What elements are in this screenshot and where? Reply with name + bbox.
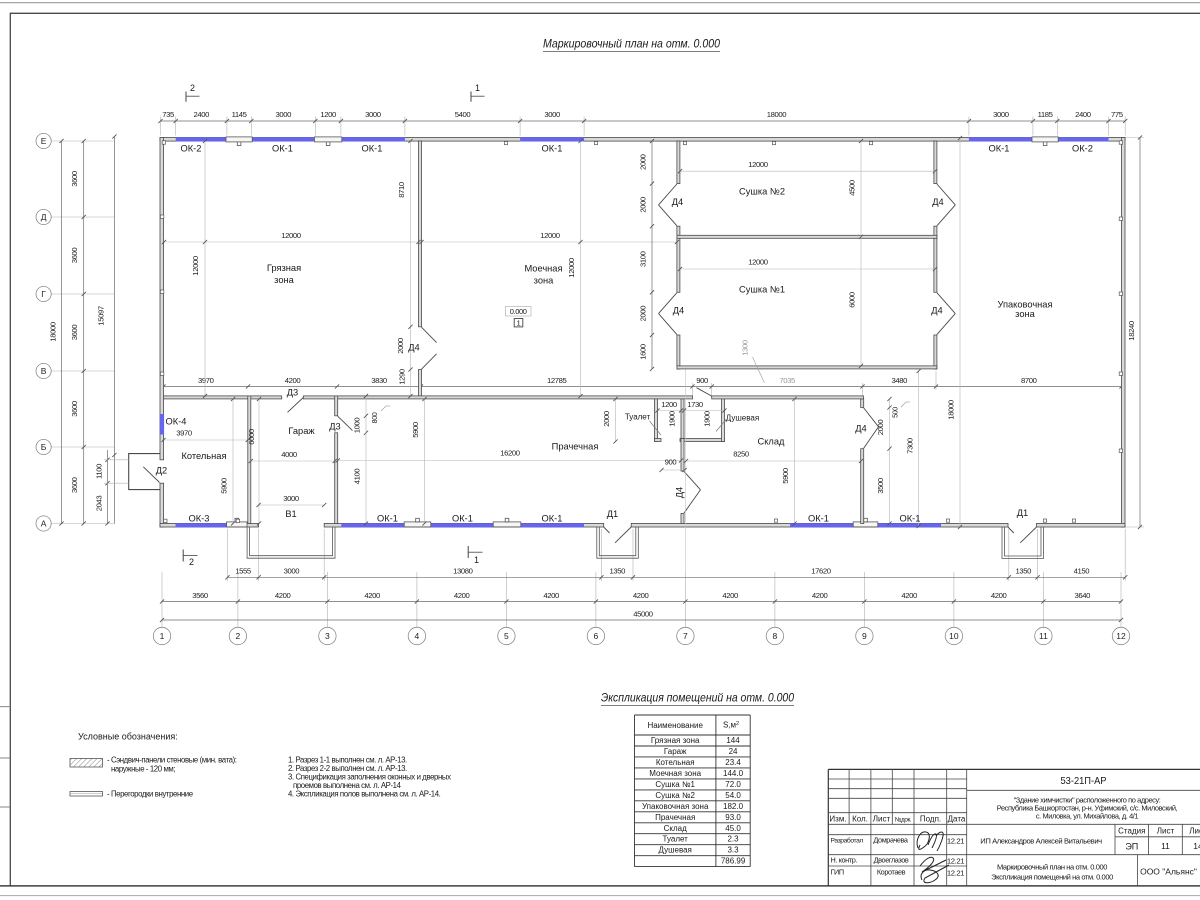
svg-text:5400: 5400 — [455, 110, 471, 119]
svg-text:18000: 18000 — [49, 322, 58, 342]
svg-text:Грязная зона: Грязная зона — [651, 736, 700, 745]
svg-text:4: 4 — [415, 631, 420, 641]
svg-text:2: 2 — [190, 83, 195, 93]
svg-text:Сушка №2: Сушка №2 — [739, 186, 785, 196]
svg-text:53-21П-АР: 53-21П-АР — [1061, 776, 1107, 787]
svg-text:ОК-2: ОК-2 — [1072, 144, 1093, 154]
svg-text:3600: 3600 — [70, 477, 79, 493]
svg-text:Д4: Д4 — [675, 487, 685, 498]
svg-text:ЭП: ЭП — [1125, 842, 1138, 852]
svg-text:Кол.: Кол. — [852, 815, 868, 824]
svg-text:3600: 3600 — [70, 325, 79, 341]
svg-text:Туалет: Туалет — [663, 835, 689, 844]
svg-text:12000: 12000 — [567, 258, 576, 278]
svg-text:1145: 1145 — [232, 110, 247, 119]
svg-text:4100: 4100 — [353, 469, 362, 485]
svg-text:ГИП: ГИП — [831, 868, 844, 877]
svg-text:23.4: 23.4 — [725, 758, 741, 767]
svg-text:3: 3 — [325, 631, 330, 641]
svg-text:12000: 12000 — [748, 258, 768, 267]
svg-text:2400: 2400 — [1075, 110, 1091, 119]
svg-text:Сушка №1: Сушка №1 — [655, 780, 695, 789]
svg-text:Д4: Д4 — [673, 306, 684, 316]
svg-text:12.21: 12.21 — [947, 857, 964, 866]
svg-text:Моечная: Моечная — [524, 263, 562, 273]
svg-text:1100: 1100 — [95, 464, 104, 479]
svg-text:Котельная: Котельная — [656, 758, 695, 767]
svg-text:1185: 1185 — [1038, 110, 1053, 119]
svg-text:ОК-1: ОК-1 — [542, 514, 563, 524]
svg-text:Д2: Д2 — [156, 466, 167, 476]
svg-text:45.0: 45.0 — [725, 824, 741, 833]
svg-text:735: 735 — [162, 110, 174, 119]
svg-text:800: 800 — [370, 412, 379, 423]
svg-text:Б: Б — [41, 442, 47, 452]
svg-text:3600: 3600 — [70, 171, 79, 187]
svg-text:2000: 2000 — [639, 197, 648, 213]
svg-text:6: 6 — [594, 631, 599, 641]
svg-text:72.0: 72.0 — [725, 780, 741, 789]
svg-text:Наименование: Наименование — [647, 721, 703, 730]
svg-text:12.21: 12.21 — [947, 837, 964, 846]
svg-text:Лист: Лист — [1157, 827, 1175, 836]
svg-text:8710: 8710 — [397, 182, 406, 198]
svg-text:Д1: Д1 — [1017, 508, 1028, 518]
svg-text:2: 2 — [189, 557, 194, 567]
svg-text:с. Миловка, ул. Михайлова, д.: с. Миловка, ул. Михайлова, д. 4/1 — [1036, 812, 1139, 821]
svg-text:3100: 3100 — [639, 251, 648, 267]
svg-text:786.99: 786.99 — [721, 857, 746, 866]
svg-text:3600: 3600 — [70, 248, 79, 264]
svg-text:3970: 3970 — [198, 376, 214, 385]
svg-text:ОК-2: ОК-2 — [181, 144, 202, 154]
svg-text:12000: 12000 — [748, 160, 768, 169]
svg-text:Экспликация помещений на отм.: Экспликация помещений на отм. 0.000 — [601, 691, 794, 705]
svg-text:17620: 17620 — [811, 567, 831, 576]
svg-text:11: 11 — [1161, 841, 1170, 851]
svg-text:Туалет: Туалет — [625, 413, 651, 422]
svg-text:54.0: 54.0 — [725, 791, 741, 800]
svg-text:Н. контр.: Н. контр. — [831, 856, 858, 865]
svg-text:Гараж: Гараж — [288, 426, 315, 436]
svg-text:ОК-1: ОК-1 — [989, 144, 1010, 154]
svg-text:3830: 3830 — [371, 376, 387, 385]
svg-text:3560: 3560 — [192, 591, 208, 600]
svg-text:Д4: Д4 — [931, 306, 942, 316]
svg-text:Стадия: Стадия — [1118, 827, 1145, 836]
svg-text:93.0: 93.0 — [725, 813, 741, 822]
svg-text:4200: 4200 — [901, 591, 917, 600]
svg-text:4150: 4150 — [1074, 567, 1090, 576]
svg-text:1290: 1290 — [398, 369, 407, 385]
svg-text:16200: 16200 — [500, 448, 520, 457]
svg-text:1350: 1350 — [609, 567, 625, 576]
svg-text:8: 8 — [773, 631, 778, 641]
svg-text:18000: 18000 — [947, 400, 956, 420]
svg-text:12000: 12000 — [191, 256, 200, 276]
svg-text:8700: 8700 — [1021, 376, 1037, 385]
svg-text:1900: 1900 — [703, 411, 712, 427]
svg-text:Лист: Лист — [873, 815, 891, 824]
svg-text:Маркировочный план на отм. 0.0: Маркировочный план на отм. 0.000 — [543, 37, 720, 51]
svg-text:ОК-1: ОК-1 — [377, 514, 398, 524]
svg-text:Дата: Дата — [948, 815, 966, 824]
svg-text:зона: зона — [1015, 309, 1035, 319]
svg-text:- Перегородки внутренние: - Перегородки внутренние — [107, 790, 193, 799]
svg-text:3640: 3640 — [1074, 591, 1090, 600]
svg-text:3000: 3000 — [365, 110, 381, 119]
svg-text:5: 5 — [504, 631, 509, 641]
svg-text:1300: 1300 — [741, 340, 750, 356]
svg-text:7: 7 — [683, 631, 688, 641]
svg-text:- Сэндвич-панели стеновые (мин: - Сэндвич-панели стеновые (мин. вата): — [107, 756, 237, 765]
svg-text:Д4: Д4 — [932, 197, 943, 207]
svg-text:13080: 13080 — [453, 567, 473, 576]
svg-text:144.0: 144.0 — [723, 769, 744, 778]
svg-text:3600: 3600 — [70, 401, 79, 417]
svg-text:1: 1 — [160, 631, 165, 641]
svg-text:Котельная: Котельная — [181, 451, 226, 461]
svg-text:Е: Е — [41, 136, 47, 146]
svg-text:4200: 4200 — [812, 591, 828, 600]
svg-text:144: 144 — [726, 736, 740, 745]
svg-text:5900: 5900 — [411, 422, 420, 438]
svg-text:2043: 2043 — [95, 496, 104, 512]
svg-text:Д: Д — [41, 212, 47, 222]
svg-text:0.000: 0.000 — [510, 307, 527, 316]
svg-text:182.0: 182.0 — [723, 802, 744, 811]
svg-text:7035: 7035 — [779, 376, 795, 385]
svg-text:ОК-4: ОК-4 — [166, 417, 187, 427]
svg-text:Упаковочная зона: Упаковочная зона — [642, 802, 709, 811]
svg-text:ИП Александров Алексей Виталье: ИП Александров Алексей Витальевич — [980, 837, 1102, 846]
svg-text:2000: 2000 — [639, 154, 648, 170]
svg-text:Душевая: Душевая — [726, 414, 759, 423]
svg-text:4200: 4200 — [722, 591, 738, 600]
svg-text:№док.: №док. — [895, 817, 912, 824]
svg-text:Экспликация помещений на отм.: Экспликация помещений на отм. 0.000 — [991, 873, 1113, 882]
svg-text:12000: 12000 — [540, 231, 560, 240]
svg-text:Д3: Д3 — [287, 388, 298, 398]
svg-text:Сушка №2: Сушка №2 — [655, 791, 695, 800]
svg-text:3000: 3000 — [993, 110, 1009, 119]
svg-text:1: 1 — [474, 555, 479, 565]
svg-text:Прачечная: Прачечная — [655, 813, 695, 822]
svg-text:10: 10 — [949, 631, 959, 641]
svg-text:2000: 2000 — [602, 411, 611, 427]
svg-text:Склад: Склад — [758, 437, 785, 447]
svg-text:Разработал: Разработал — [831, 837, 864, 845]
svg-text:4500: 4500 — [848, 180, 857, 196]
svg-text:15097: 15097 — [97, 306, 106, 326]
svg-text:2000: 2000 — [876, 420, 885, 436]
svg-text:4000: 4000 — [281, 450, 297, 459]
svg-text:Душевая: Душевая — [658, 846, 691, 855]
svg-text:1555: 1555 — [235, 567, 251, 576]
svg-text:Грязная: Грязная — [267, 263, 301, 273]
svg-text:900: 900 — [696, 376, 708, 385]
svg-text:4200: 4200 — [633, 591, 649, 600]
svg-text:5900: 5900 — [781, 468, 790, 484]
svg-text:ОК-1: ОК-1 — [272, 144, 293, 154]
svg-text:Коротаев: Коротаев — [877, 868, 906, 877]
svg-text:2000: 2000 — [639, 306, 648, 322]
svg-text:ОК-1: ОК-1 — [808, 514, 829, 524]
svg-text:1: 1 — [517, 318, 521, 327]
svg-text:Условные обозначения:: Условные обозначения: — [78, 732, 178, 742]
svg-text:зона: зона — [534, 275, 554, 285]
svg-text:Упаковочная: Упаковочная — [997, 300, 1052, 310]
svg-text:3000: 3000 — [283, 494, 299, 503]
svg-text:Изм.: Изм. — [829, 815, 846, 824]
svg-text:Моечная зона: Моечная зона — [649, 769, 701, 778]
svg-text:45000: 45000 — [633, 610, 653, 619]
svg-text:Двоеглазов: Двоеглазов — [874, 856, 909, 865]
svg-text:зона: зона — [274, 275, 294, 285]
svg-text:Подп.: Подп. — [920, 815, 941, 824]
svg-text:11: 11 — [1039, 631, 1048, 641]
svg-text:Сушка №1: Сушка №1 — [739, 284, 785, 294]
svg-text:Прачечная: Прачечная — [552, 442, 599, 452]
svg-text:3000: 3000 — [544, 110, 560, 119]
svg-text:Д4: Д4 — [672, 197, 683, 207]
svg-text:7300: 7300 — [905, 438, 914, 454]
svg-text:наружные - 120 мм;: наружные - 120 мм; — [111, 765, 175, 774]
svg-text:1730: 1730 — [687, 400, 703, 409]
svg-text:3970: 3970 — [176, 428, 192, 437]
svg-text:1600: 1600 — [639, 344, 648, 360]
svg-text:5900: 5900 — [220, 478, 229, 494]
svg-text:Гараж: Гараж — [664, 747, 687, 756]
svg-text:Склад: Склад — [664, 824, 687, 833]
svg-text:4200: 4200 — [543, 591, 559, 600]
svg-text:А: А — [41, 519, 47, 529]
svg-text:4200: 4200 — [285, 376, 301, 385]
svg-text:ООО "Альянс": ООО "Альянс" — [1140, 867, 1197, 877]
svg-text:ОК-1: ОК-1 — [452, 514, 473, 524]
svg-text:3480: 3480 — [891, 376, 907, 385]
svg-text:6000: 6000 — [247, 429, 256, 445]
svg-text:900: 900 — [665, 458, 677, 467]
svg-text:4200: 4200 — [275, 591, 291, 600]
svg-text:24: 24 — [729, 747, 738, 756]
svg-text:Д4: Д4 — [408, 343, 419, 353]
svg-text:В1: В1 — [285, 509, 296, 519]
svg-text:1350: 1350 — [1015, 567, 1031, 576]
svg-text:3.3: 3.3 — [727, 846, 739, 855]
svg-text:Домрачева: Домрачева — [873, 836, 909, 845]
svg-text:ОК-1: ОК-1 — [900, 514, 921, 524]
svg-text:Маркировочный план на отм. 0.0: Маркировочный план на отм. 0.000 — [997, 863, 1107, 872]
svg-text:9: 9 — [862, 631, 867, 641]
svg-text:1000: 1000 — [353, 418, 362, 434]
svg-text:8250: 8250 — [733, 450, 749, 459]
svg-text:2.3: 2.3 — [727, 835, 739, 844]
svg-text:Лист: Лист — [1189, 827, 1200, 836]
svg-text:1900: 1900 — [668, 411, 677, 427]
svg-text:1200: 1200 — [661, 400, 677, 409]
svg-text:ОК-1: ОК-1 — [362, 144, 383, 154]
svg-text:775: 775 — [1111, 110, 1123, 119]
svg-text:12785: 12785 — [547, 376, 567, 385]
svg-text:2000: 2000 — [396, 338, 405, 354]
svg-text:14: 14 — [1193, 841, 1200, 851]
svg-text:1: 1 — [475, 83, 480, 93]
svg-text:12000: 12000 — [281, 231, 301, 240]
svg-text:12.21: 12.21 — [947, 869, 964, 878]
svg-text:6000: 6000 — [848, 292, 857, 308]
svg-text:Д3: Д3 — [329, 422, 340, 432]
svg-text:18240: 18240 — [1127, 321, 1136, 341]
svg-text:12: 12 — [1116, 631, 1126, 641]
svg-text:4. Экспликация полов выполнена: 4. Экспликация полов выполнена см. л. АР… — [288, 790, 441, 799]
svg-text:В: В — [41, 366, 47, 376]
svg-text:Г: Г — [41, 289, 46, 299]
svg-text:4200: 4200 — [454, 591, 470, 600]
svg-text:Д1: Д1 — [607, 509, 618, 519]
svg-text:4200: 4200 — [364, 591, 380, 600]
svg-text:2: 2 — [236, 631, 241, 641]
svg-text:4200: 4200 — [991, 591, 1007, 600]
svg-text:18000: 18000 — [767, 110, 787, 119]
svg-text:2400: 2400 — [194, 110, 210, 119]
svg-text:Д4: Д4 — [855, 424, 866, 434]
svg-text:3000: 3000 — [284, 567, 300, 576]
svg-text:ОК-3: ОК-3 — [189, 514, 210, 524]
svg-text:ОК-1: ОК-1 — [542, 144, 563, 154]
svg-text:1200: 1200 — [320, 110, 336, 119]
svg-text:3500: 3500 — [876, 478, 885, 494]
svg-text:500: 500 — [891, 407, 900, 418]
svg-text:3000: 3000 — [276, 110, 292, 119]
